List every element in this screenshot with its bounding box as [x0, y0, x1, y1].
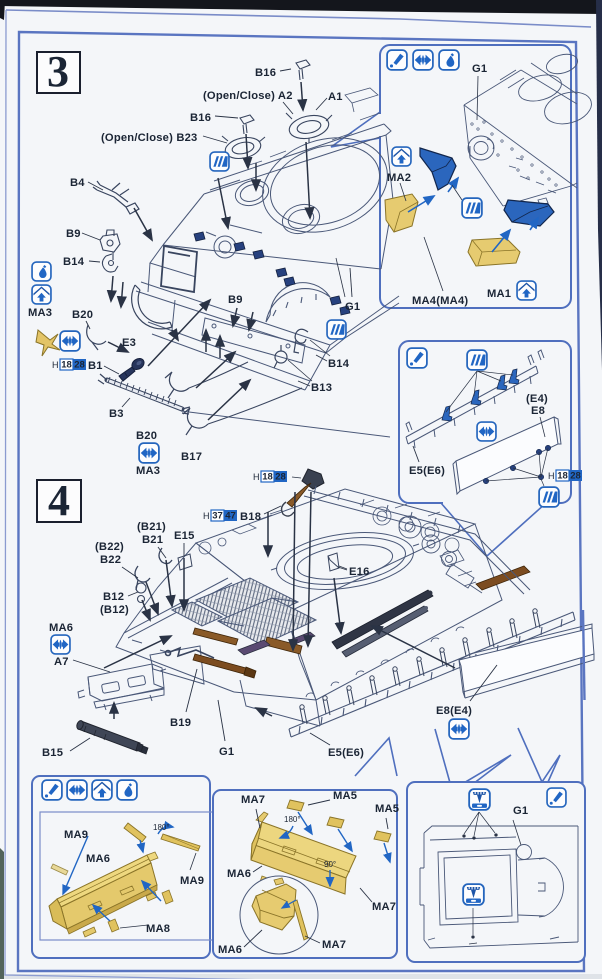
svg-text:B15: B15 — [42, 747, 63, 759]
svg-text:B16: B16 — [190, 112, 211, 124]
svg-text:MA6: MA6 — [49, 622, 73, 634]
svg-text:MA7: MA7 — [372, 901, 396, 913]
svg-text:B19: B19 — [170, 717, 191, 729]
svg-text:MA3: MA3 — [28, 307, 52, 319]
svg-text:E5(E6): E5(E6) — [328, 747, 364, 759]
svg-text:90°: 90° — [324, 860, 336, 869]
svg-text:B21: B21 — [142, 534, 163, 546]
svg-text:B22: B22 — [100, 554, 121, 566]
svg-text:18: 18 — [61, 360, 72, 371]
svg-text:28: 28 — [74, 360, 85, 371]
svg-text:MA6: MA6 — [227, 868, 251, 880]
svg-text:G1: G1 — [345, 301, 360, 313]
svg-text:B12: B12 — [103, 591, 124, 603]
svg-text:E3: E3 — [122, 337, 136, 349]
svg-text:MA6: MA6 — [86, 853, 110, 865]
svg-text:H: H — [203, 511, 210, 521]
svg-text:G1: G1 — [472, 63, 487, 75]
svg-text:4: 4 — [48, 476, 70, 525]
svg-text:H: H — [548, 471, 555, 481]
svg-text:B3: B3 — [109, 408, 124, 420]
svg-text:MA4(MA4): MA4(MA4) — [412, 295, 468, 307]
svg-text:B14: B14 — [63, 256, 85, 268]
svg-text:MA8: MA8 — [146, 923, 170, 935]
svg-text:MA1: MA1 — [487, 288, 511, 300]
svg-text:MA7: MA7 — [241, 794, 265, 806]
svg-text:B14: B14 — [328, 358, 350, 370]
svg-text:MA9: MA9 — [64, 829, 88, 841]
svg-text:3: 3 — [47, 47, 69, 96]
svg-text:28: 28 — [275, 472, 286, 483]
svg-text:E15: E15 — [174, 530, 195, 542]
svg-text:(E4): (E4) — [526, 393, 548, 405]
svg-text:A7: A7 — [54, 656, 69, 668]
svg-text:37: 37 — [212, 511, 223, 522]
svg-text:B4: B4 — [70, 177, 85, 189]
svg-text:(Open/Close) B23: (Open/Close) B23 — [101, 132, 197, 144]
svg-text:18: 18 — [557, 471, 568, 482]
svg-text:(B12): (B12) — [100, 604, 129, 616]
svg-text:MA7: MA7 — [322, 939, 346, 951]
svg-text:B9: B9 — [66, 228, 81, 240]
svg-text:180°: 180° — [284, 815, 301, 824]
svg-text:(B22): (B22) — [95, 541, 124, 553]
svg-text:MA3: MA3 — [136, 465, 160, 477]
svg-text:B18: B18 — [240, 511, 261, 523]
svg-text:MA5: MA5 — [375, 803, 399, 815]
svg-text:MA5: MA5 — [333, 790, 357, 802]
svg-text:B20: B20 — [72, 309, 93, 321]
svg-text:(B21): (B21) — [137, 521, 166, 533]
svg-text:E5(E6): E5(E6) — [409, 465, 445, 477]
svg-text:47: 47 — [225, 511, 236, 522]
svg-text:A1: A1 — [328, 91, 343, 103]
svg-text:E8(E4): E8(E4) — [436, 705, 472, 717]
svg-text:G1: G1 — [219, 746, 234, 758]
svg-text:28: 28 — [570, 471, 581, 482]
svg-text:E16: E16 — [349, 566, 370, 578]
svg-text:B20: B20 — [136, 430, 157, 442]
svg-text:(Open/Close) A2: (Open/Close) A2 — [203, 90, 293, 102]
svg-text:MA6: MA6 — [218, 944, 242, 956]
svg-text:MA2: MA2 — [387, 172, 411, 184]
svg-text:B17: B17 — [181, 451, 202, 463]
svg-text:MA9: MA9 — [180, 875, 204, 887]
svg-text:180°: 180° — [153, 823, 170, 832]
svg-text:B1: B1 — [88, 360, 103, 372]
svg-text:E8: E8 — [531, 405, 545, 417]
svg-text:H: H — [253, 472, 260, 482]
svg-text:B16: B16 — [255, 67, 276, 79]
svg-text:B9: B9 — [228, 294, 243, 306]
svg-text:H: H — [52, 360, 59, 370]
svg-text:G1: G1 — [513, 805, 528, 817]
svg-text:B13: B13 — [311, 382, 332, 394]
svg-text:18: 18 — [262, 472, 273, 483]
